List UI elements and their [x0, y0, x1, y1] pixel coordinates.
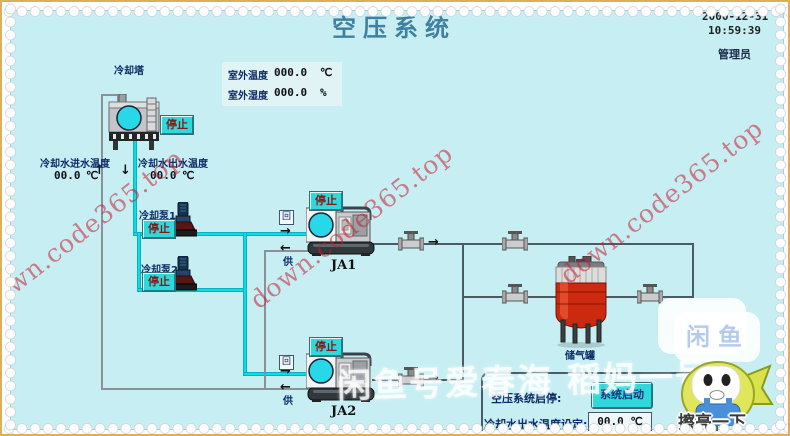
ja2-supply-tag: 供: [283, 392, 293, 407]
tower-stop-button[interactable]: 停止: [161, 116, 193, 134]
scallop-border-right: [773, 2, 788, 436]
ja1-return-tag: 回: [279, 210, 294, 225]
inlet-temp-label: 冷却水进水温度: [40, 155, 110, 170]
outdoor-temp-label: 室外温度: [228, 67, 268, 82]
scallop-border-left: [3, 2, 18, 436]
scallop-border-bottom: [2, 421, 790, 436]
outdoor-hum-unit: %: [320, 86, 327, 99]
scallop-border-top: [2, 4, 790, 19]
pump2-stop-button[interactable]: 停止: [143, 273, 175, 291]
inlet-temp-unit: ℃: [86, 169, 98, 182]
outdoor-temp-unit: ℃: [320, 66, 332, 79]
ja2-return-tag: 回: [279, 355, 294, 370]
valve-tank-out-icon: [637, 284, 663, 304]
pipe-return-riser: [101, 94, 103, 390]
outdoor-hum-label: 室外湿度: [228, 87, 268, 102]
cooling-tower-icon: [105, 94, 167, 154]
time-display: 10:59:39: [708, 24, 761, 37]
hmi-window: 空压系统 2000-12-31 10:59:39 管理员 室外温度 000.0 …: [0, 0, 790, 436]
valve-ja1-icon: [398, 231, 424, 251]
air-flow-arrow-icon: →: [428, 236, 439, 249]
valve-top-icon: [502, 231, 528, 251]
pipe-return-mid: [264, 250, 266, 390]
watermark-seller-text: 闲鱼号爱春海 稻妈一号: [336, 349, 711, 408]
tower-label: 冷却塔: [114, 62, 144, 77]
ja1-supply-arrow-icon: →: [280, 225, 291, 238]
pipe-supply-ja2: [243, 372, 313, 376]
inlet-temp-value: 00.0: [54, 169, 81, 182]
outdoor-hum-value: 000.0: [274, 86, 307, 99]
pump1-stop-button[interactable]: 停止: [143, 220, 175, 238]
valve-tank-in-icon: [502, 284, 528, 304]
outlet-temp-unit: ℃: [182, 169, 194, 182]
ja2-stop-button[interactable]: 停止: [310, 338, 342, 356]
ja1-stop-button[interactable]: 停止: [310, 192, 342, 210]
ja1-label: JA1: [331, 258, 356, 273]
pipe-supply-down: [243, 232, 247, 376]
pipe-air-right: [692, 243, 694, 298]
outdoor-temp-value: 000.0: [274, 66, 307, 79]
user-display: 管理员: [718, 46, 751, 62]
